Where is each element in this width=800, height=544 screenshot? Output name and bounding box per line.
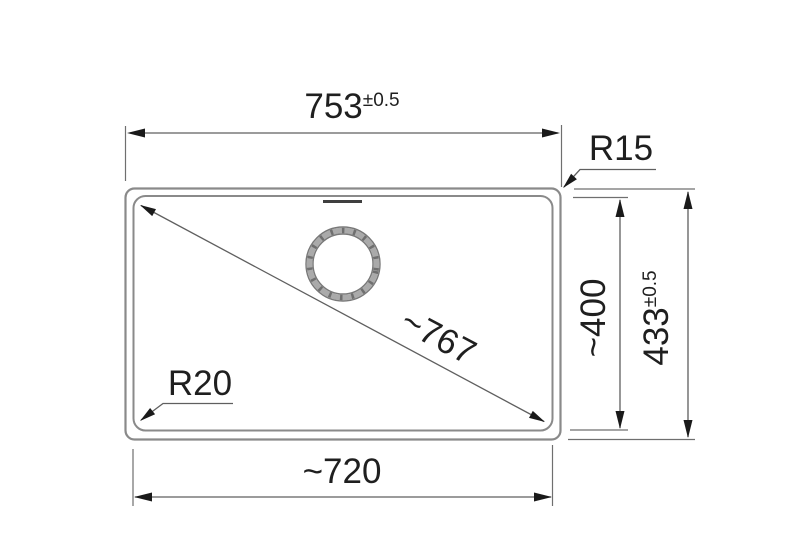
leader-line — [141, 404, 233, 421]
dimension-label: 433±0.5 — [637, 270, 676, 365]
drawing-canvas: 753±0.5 R15 ~400 433±0.5 ~767 R20 — [0, 0, 800, 544]
callout-outer-corner-radius: R15 — [563, 129, 656, 188]
drain-hole — [303, 224, 382, 303]
arrowhead-bottomright — [529, 411, 545, 422]
drain-outer-edge — [306, 227, 380, 301]
arrowhead-right — [542, 129, 560, 138]
arrowhead-topleft — [140, 205, 156, 216]
callout-inner-corner-radius: R20 — [140, 364, 233, 421]
drain-ring-hatch — [303, 224, 382, 303]
dimension-label: ~720 — [303, 452, 382, 491]
arrowhead-left — [127, 129, 145, 138]
drain-ring — [310, 231, 377, 298]
sink-dimension-drawing: 753±0.5 R15 ~400 433±0.5 ~767 R20 — [0, 0, 800, 544]
dimension-label: ~400 — [574, 279, 613, 358]
dimension-inner-height: ~400 — [570, 198, 628, 431]
arrowhead-right — [534, 493, 552, 502]
arrowhead-down — [616, 411, 625, 429]
drain-inner-edge — [313, 234, 373, 294]
arrowhead-up — [684, 191, 693, 209]
dimension-label: 753±0.5 — [304, 87, 399, 126]
dimension-inner-width: ~720 — [133, 445, 553, 506]
arrowhead — [140, 408, 155, 421]
dimension-outer-width: 753±0.5 — [126, 87, 562, 187]
radius-label: R20 — [168, 364, 232, 403]
arrowhead-up — [616, 199, 625, 217]
arrowhead-left — [134, 493, 152, 502]
dimension-label: ~767 — [394, 301, 482, 372]
leader-line — [564, 170, 656, 188]
arrowhead-down — [684, 420, 693, 438]
radius-label: R15 — [589, 129, 653, 168]
